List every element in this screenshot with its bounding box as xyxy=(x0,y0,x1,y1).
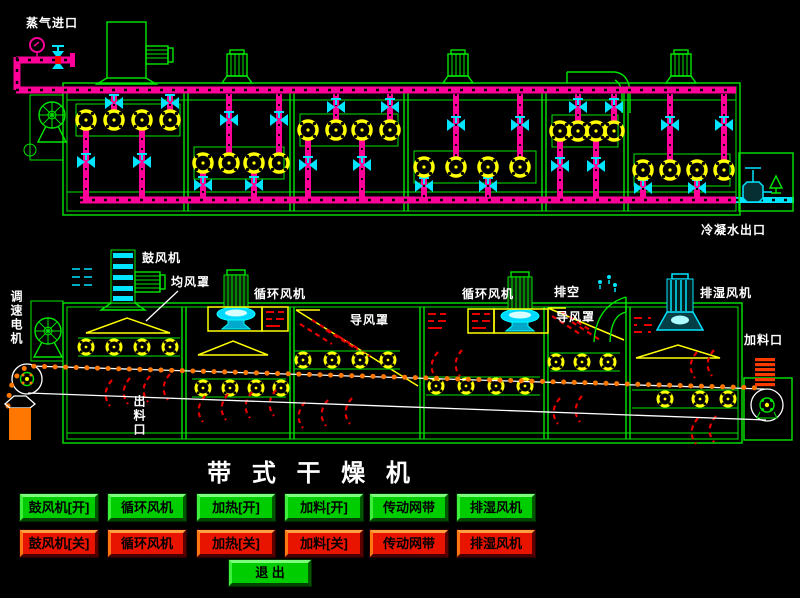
steam-valves xyxy=(77,95,733,194)
heating-coil-flanges xyxy=(77,111,733,179)
left-fan-annex-top xyxy=(24,95,66,160)
speed-motor-unit xyxy=(31,301,63,361)
belt-pulley-left xyxy=(21,373,34,386)
speed-motor-label: 调速电机 xyxy=(8,290,25,346)
air-guide-label-2: 导风罩 xyxy=(556,308,595,325)
water-drop-icons xyxy=(598,275,617,292)
exhaust-elbow-duct-middle xyxy=(594,275,626,342)
page-title: 带 式 干 燥 机 xyxy=(187,453,437,488)
discharge-chute xyxy=(5,396,35,440)
belt-drive-off-button[interactable]: 传动网带[关] xyxy=(370,530,448,557)
steam-inlet-label: 蒸气进口 xyxy=(26,14,78,31)
air-guide-label-1: 导风罩 xyxy=(350,311,389,328)
vent-dashes-icon xyxy=(72,269,92,285)
blower-off-button[interactable]: 鼓风机[关] xyxy=(20,530,98,557)
exhaust-stack xyxy=(97,22,173,84)
dryer-body-diagram xyxy=(5,250,792,444)
feed-inlet-bars xyxy=(755,358,775,386)
belt-rollers xyxy=(78,338,738,408)
circulation-fan-label-2: 循环风机 xyxy=(462,285,514,302)
feeding-off-button[interactable]: 加料[关] xyxy=(285,530,363,557)
air-distributor-label: 均风罩 xyxy=(171,273,210,290)
circulation-fan-on-button[interactable]: 循环风机[开] xyxy=(108,494,186,521)
exit-button[interactable]: 退 出 xyxy=(229,560,311,586)
air-distribution-hoods xyxy=(86,291,720,358)
dehumidifier-fan-on-button[interactable]: 排湿风机[开] xyxy=(457,494,535,521)
circulation-fan-label-1: 循环风机 xyxy=(254,285,306,302)
steam-headers xyxy=(16,90,794,200)
dehumidifier-fan-label: 排湿风机 xyxy=(700,284,752,301)
vent-label: 排空 xyxy=(554,283,580,300)
safety-valve-icon xyxy=(770,176,782,193)
feeding-on-button[interactable]: 加料[开] xyxy=(285,494,363,521)
feed-inlet-label: 加料口 xyxy=(744,331,783,348)
belt-pulley-right xyxy=(757,398,777,418)
blower-label: 鼓风机 xyxy=(142,249,181,266)
condensate-outlet-label: 冷凝水出口 xyxy=(701,221,766,238)
discharge-outlet-label: 出料口 xyxy=(131,395,148,437)
heating-off-button[interactable]: 加热[关] xyxy=(197,530,275,557)
blower-on-button[interactable]: 鼓风机[开] xyxy=(20,494,98,521)
heating-on-button[interactable]: 加热[开] xyxy=(197,494,275,521)
pressure-gauge-icon xyxy=(30,38,44,57)
steam-inlet-pipe xyxy=(16,38,75,90)
steam-piping-diagram xyxy=(16,22,794,215)
circulation-fan-off-button[interactable]: 循环风机[关] xyxy=(108,530,186,557)
air-distributor-pointer-line xyxy=(146,291,178,321)
belt-drive-on-button[interactable]: 传动网带[开] xyxy=(370,494,448,521)
dehumidifier-fan-off-button[interactable]: 排湿风机[关] xyxy=(457,530,535,557)
belt-dryer-hmi-screen: 蒸气进口 冷凝水出口 鼓风机 均风罩 调速电机 循环风机 循环风机 导风罩 导风… xyxy=(0,0,800,598)
belt-dot-chain xyxy=(8,366,763,406)
